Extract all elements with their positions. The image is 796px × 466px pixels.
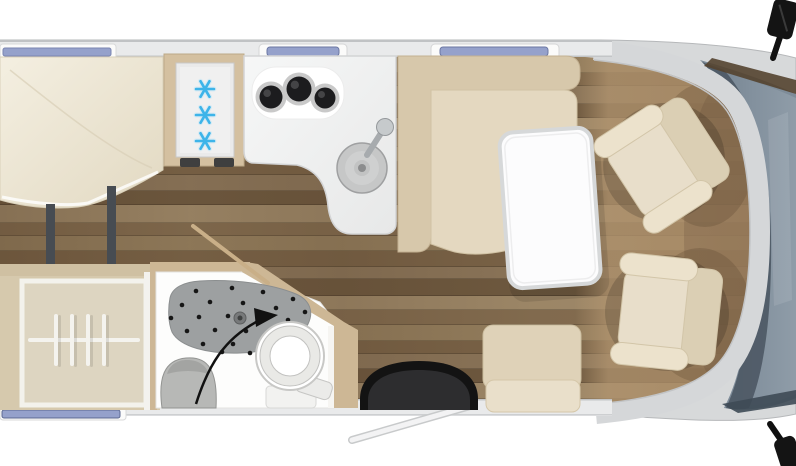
hanger-icon [54,314,58,366]
side-bench [483,325,581,412]
burner-highlight [263,89,271,97]
shower-dot [185,329,190,334]
shower-dot [291,297,296,302]
hanger-icon [102,314,106,366]
shower-dot [194,289,199,294]
shower-dot [197,315,202,320]
hanger-shadow [74,315,77,367]
motorhome-floorplan [0,0,796,466]
shower-dot [208,300,213,305]
shower-dot [180,303,185,308]
hanger-shadow [90,315,93,367]
shower-dot [231,342,236,347]
shower-dot [201,342,206,347]
hanger-icon [86,314,90,366]
shower-dot [248,351,253,356]
shower-dot [241,301,246,306]
burner-highlight [318,91,325,98]
hanger-shadow [58,315,61,367]
shower-dot [213,328,218,333]
burner-icon [287,77,312,102]
hanger-icon [70,314,74,366]
shower-dot [226,314,231,319]
faucet-knob [377,119,394,136]
shower-dot [261,290,266,295]
snowflake-group [196,81,214,149]
burner-highlight [291,81,299,89]
burner-icon [260,86,283,109]
bed-support-bar [107,186,116,266]
shower-dot [303,310,308,315]
shower-dot [230,286,235,291]
side-mirror-bottom [770,424,796,466]
fridge [164,54,244,167]
side-mirror-top [766,0,796,58]
shower-dot [169,316,174,321]
hanger-shadow [106,315,109,367]
burner-icon [315,88,336,109]
wardrobe [0,264,160,410]
bed-support-bar [46,204,55,266]
floorplan-canvas [0,0,796,466]
shower-dot [274,306,279,311]
dinette-table [499,127,611,303]
